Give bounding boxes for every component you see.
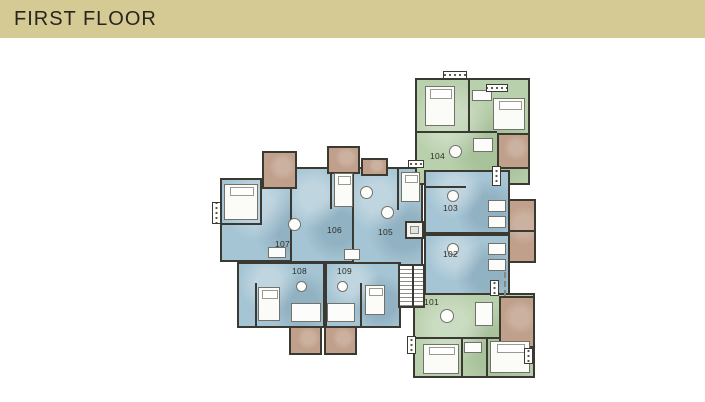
unit-number-label: 109 (337, 266, 352, 276)
bed (224, 184, 258, 220)
unit-number-label: 105 (378, 227, 393, 237)
interior-wall (360, 283, 362, 326)
window-marker (486, 84, 508, 92)
interior-wall (330, 169, 332, 209)
interior-wall (397, 169, 399, 210)
balcony-109 (324, 326, 357, 355)
table (288, 218, 301, 231)
bed (401, 172, 420, 202)
table (337, 281, 348, 292)
sofa (488, 200, 506, 212)
floor-plan: 101 102 103 104 105 106 107 108 109 (0, 0, 705, 402)
page: FIRST FLOOR (0, 0, 705, 402)
bed (334, 173, 353, 207)
window-marker (407, 336, 416, 354)
staircase (398, 264, 425, 308)
window-marker (408, 160, 424, 168)
sofa (488, 243, 506, 255)
bed (425, 86, 455, 126)
elevator (405, 221, 424, 239)
table (449, 145, 462, 158)
table (381, 206, 394, 219)
balcony-104 (497, 133, 530, 169)
balcony-divider (508, 230, 536, 232)
table (440, 309, 454, 323)
sofa (291, 303, 321, 322)
bed (423, 344, 459, 374)
window-marker (212, 202, 221, 224)
table (360, 186, 373, 199)
bathroom-fixture (344, 249, 360, 260)
table (296, 281, 307, 292)
bed (493, 98, 525, 130)
unit-number-label: 101 (424, 297, 439, 307)
bathroom-fixture (464, 342, 482, 353)
balcony-108 (289, 326, 322, 355)
unit-number-label: 108 (292, 266, 307, 276)
window-marker (492, 166, 501, 186)
unit-number-label: 104 (430, 151, 445, 161)
sofa (475, 302, 493, 326)
unit-number-label: 103 (443, 203, 458, 213)
balcony-106 (327, 146, 360, 174)
balcony-107 (262, 151, 297, 189)
interior-wall (486, 339, 488, 378)
unit-number-label: 102 (443, 249, 458, 259)
window-marker (490, 280, 499, 296)
sofa (488, 259, 506, 271)
interior-wall (417, 131, 497, 133)
unit-number-label: 106 (327, 225, 342, 235)
interior-wall (222, 223, 262, 225)
unit-number-label: 107 (275, 239, 290, 249)
interior-wall (468, 80, 470, 133)
sofa (473, 138, 493, 152)
table (447, 190, 459, 202)
sofa (327, 303, 355, 322)
balcony-105 (361, 158, 388, 176)
bed (365, 285, 385, 315)
interior-wall (461, 339, 463, 378)
interior-wall (426, 186, 466, 188)
bed (258, 287, 280, 321)
window-marker (443, 71, 467, 79)
window-marker (524, 348, 533, 364)
sofa (488, 216, 506, 228)
interior-wall (255, 283, 257, 326)
